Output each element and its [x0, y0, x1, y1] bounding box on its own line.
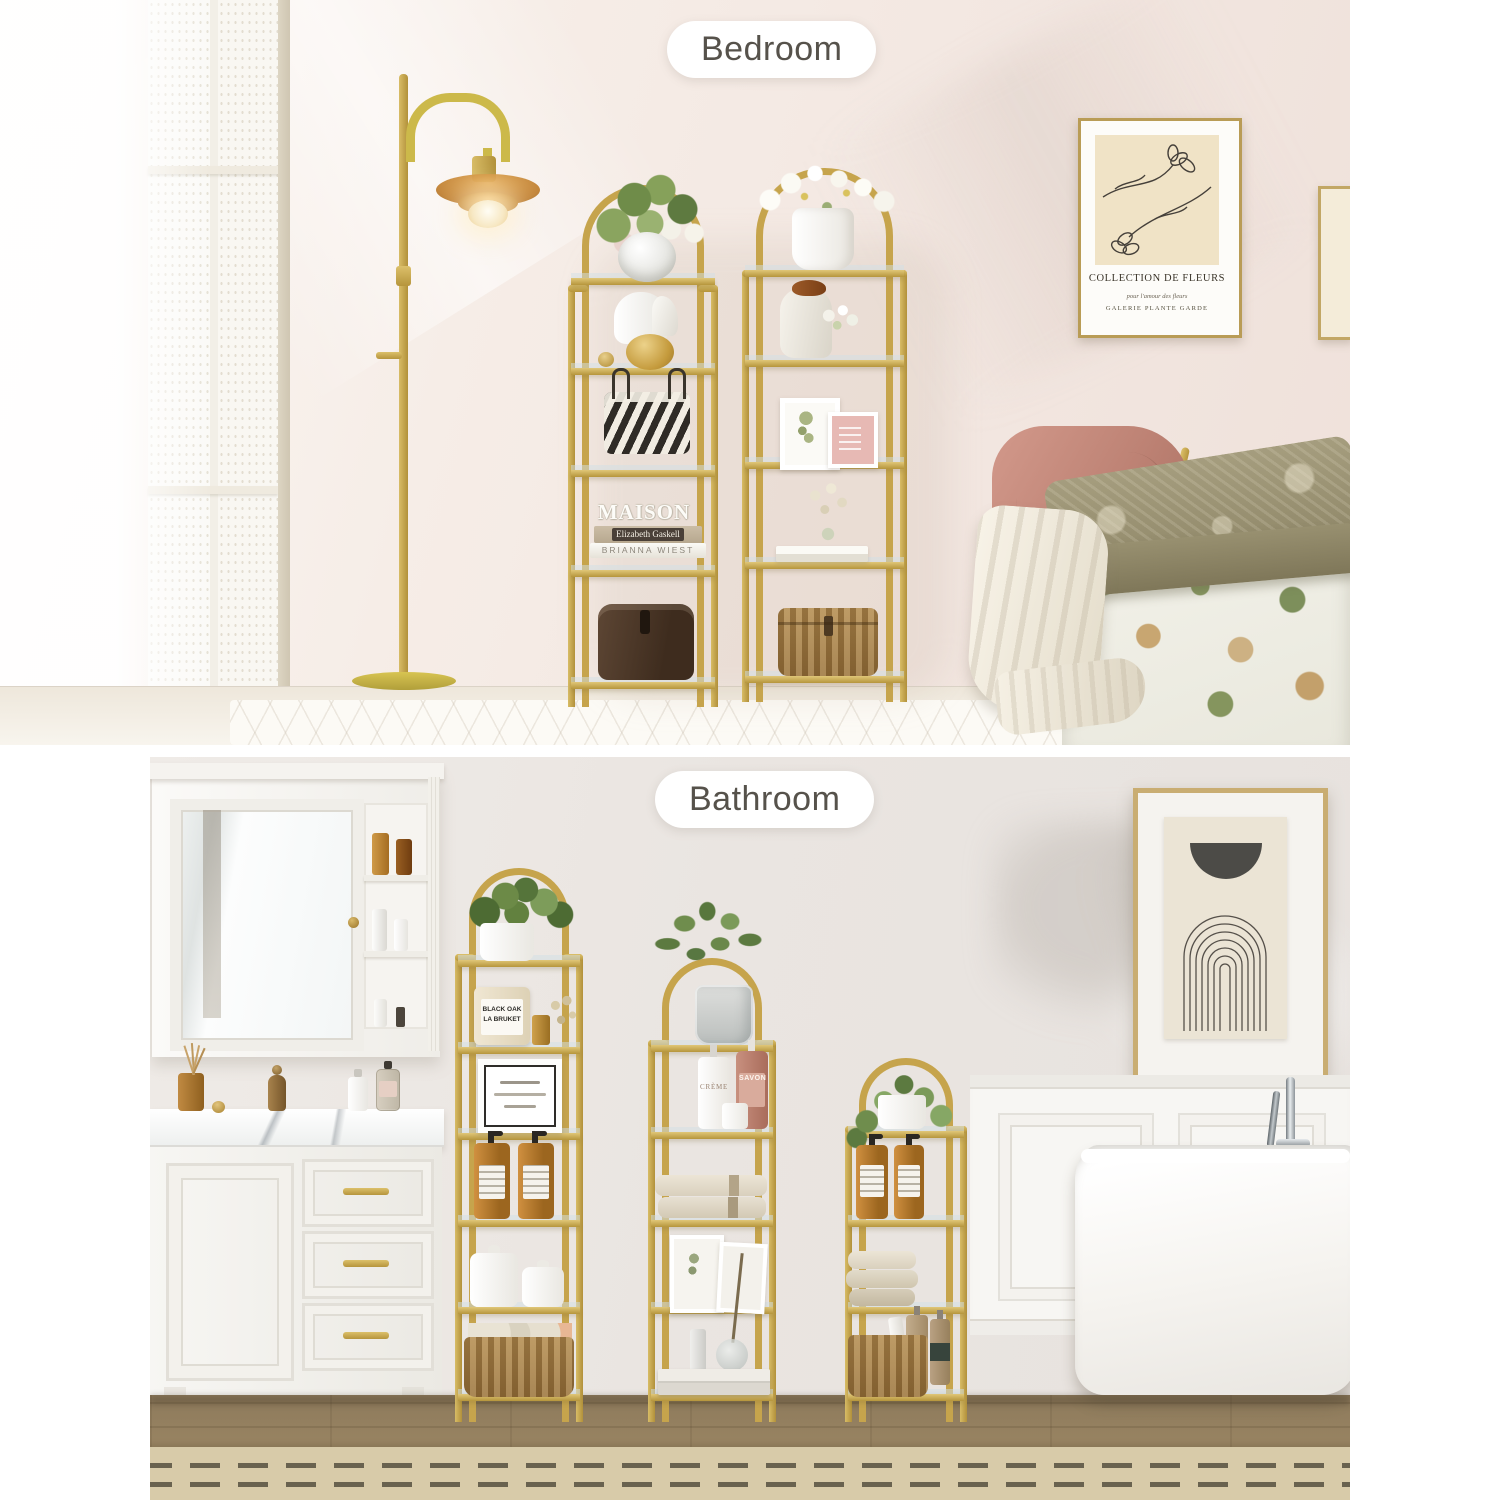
medicine-cabinet	[152, 771, 440, 1057]
tub-rim-highlight	[1081, 1149, 1350, 1163]
bottle-label	[898, 1165, 920, 1197]
book-spine-label: Elizabeth Gaskell	[612, 528, 684, 541]
art-title-text: COLLECTION DE FLEURS	[1089, 273, 1225, 284]
art-paper	[1095, 135, 1219, 265]
shelf-surface	[745, 676, 904, 683]
vanity-drawer	[302, 1303, 434, 1371]
rug-dash-pattern	[150, 1451, 1350, 1500]
art-caption-text: GALERIE PLANTE GARDE	[1106, 305, 1208, 312]
shelf-surface	[571, 470, 715, 477]
glass-vase	[695, 985, 753, 1045]
figurine-bow	[792, 280, 826, 296]
gold-ball-decor	[598, 352, 614, 367]
outer-post-right	[711, 285, 718, 707]
white-planter-pot	[878, 1095, 926, 1129]
figurine-flower-bunch	[812, 298, 868, 342]
savon-label: SAVON	[739, 1073, 765, 1107]
side-shelf-board	[364, 875, 428, 881]
shelf-surface	[458, 1133, 580, 1140]
amber-soap-bottle	[894, 1145, 924, 1219]
cabinet-pilaster	[428, 777, 440, 1051]
mirror-door	[170, 799, 364, 1051]
pump-top	[354, 1069, 362, 1077]
bathtub	[1075, 1145, 1350, 1395]
white-pitcher-vase	[792, 208, 854, 270]
creme-label: CRÈME	[700, 1083, 728, 1091]
mirror-reflection-streak	[203, 810, 221, 1018]
drawer-handle	[343, 1260, 389, 1267]
pump-top	[914, 1306, 920, 1315]
lotion-pump-bottle	[930, 1319, 950, 1385]
clutch-bag	[604, 392, 690, 454]
window-mullion-vertical	[210, 0, 218, 692]
outer-post-right	[900, 270, 907, 702]
chest-clasp	[824, 616, 833, 636]
towel-stack	[846, 1270, 918, 1288]
lotion-label-band	[930, 1343, 950, 1361]
ceramic-canister-tall	[470, 1253, 518, 1307]
bathroom-label-pill: Bathroom	[655, 771, 874, 828]
dried-sprigs	[544, 991, 582, 1039]
print-motif	[686, 1251, 702, 1281]
small-cream-jar	[722, 1103, 748, 1129]
glass-soap-bottle	[376, 1069, 400, 1111]
white-book-stack	[776, 546, 868, 562]
maison-text: MAISON	[598, 500, 690, 524]
bottle-label	[523, 1165, 549, 1199]
outer-post-left	[742, 270, 749, 702]
wicker-basket-short	[848, 1335, 928, 1397]
leather-round-case	[598, 604, 694, 680]
canister-lid-knob	[537, 1260, 549, 1267]
shelf-surface	[458, 1220, 580, 1227]
shelf-surface	[745, 360, 904, 367]
shelf-surface	[458, 1307, 580, 1314]
vanity-counter-marble	[150, 1109, 444, 1147]
vanity-drawer	[302, 1231, 434, 1299]
bedroom-label-text: Bedroom	[701, 30, 842, 68]
case-clasp	[640, 610, 650, 634]
photo-frame-pink	[828, 412, 878, 468]
pump-spout	[869, 1134, 883, 1139]
shelf-surface	[651, 1220, 773, 1227]
bathroom-scene: BLACK OAK LA BRUKET	[150, 757, 1350, 1500]
pump-spout	[532, 1131, 547, 1136]
maison-decor: MAISON	[596, 500, 692, 526]
shelf-surface	[745, 270, 904, 277]
art-nested-arches	[1164, 891, 1287, 1041]
art-subtitle-text: pour l'amour des fleurs	[1127, 293, 1188, 300]
art-caption: GALERIE PLANTE GARDE	[1085, 305, 1229, 312]
white-soap-pump	[348, 1077, 368, 1111]
outer-post-left	[648, 1040, 655, 1422]
floor-lamp-arm	[406, 93, 510, 162]
framed-quote-print	[478, 1059, 562, 1133]
shelf-surface	[651, 1132, 773, 1139]
white-bottle	[394, 919, 408, 951]
shelf-surface	[651, 1394, 773, 1401]
brass-figurine	[268, 1075, 286, 1111]
ceramic-canister-short	[522, 1267, 564, 1307]
floor-lamp-cross-stub	[376, 352, 402, 359]
amber-soap-bottle	[856, 1145, 888, 1219]
wall-art-partial	[1318, 186, 1350, 340]
window-frame-post	[278, 0, 290, 692]
savon-text: SAVON	[739, 1075, 766, 1082]
window-pane-right	[218, 0, 278, 692]
shelf-surface	[848, 1307, 964, 1314]
gold-apple-decor	[626, 334, 674, 370]
floor-lamp-bulb	[468, 200, 508, 228]
amber-pump-bottle	[372, 833, 389, 875]
vanity-body	[150, 1147, 442, 1415]
shelf-surface	[848, 1220, 964, 1227]
cabinet-side-shelves	[364, 803, 428, 1029]
quote-script-line	[494, 1093, 546, 1096]
folded-towel	[655, 1175, 767, 1196]
white-canister	[372, 909, 387, 951]
chest-lid-line	[778, 622, 878, 625]
towel-stripe	[729, 1175, 739, 1196]
pump-top	[937, 1310, 943, 1319]
reed-diffuser	[178, 1073, 204, 1111]
frame-botanical-motif	[797, 411, 815, 447]
pump-spout	[906, 1134, 920, 1139]
vanity-drawer	[302, 1159, 434, 1227]
product-photo-canvas: MAISON Elizabeth Gaskell BRIANNA WIEST	[0, 0, 1500, 1500]
shelf-surface	[571, 682, 715, 689]
vanity-door-panel	[166, 1163, 294, 1381]
crystal-sphere-vase	[618, 232, 676, 282]
cabinet-knob	[348, 917, 359, 928]
bottle-label	[479, 1165, 505, 1199]
amber-soap-bottle	[474, 1143, 510, 1219]
pump-white	[748, 1040, 755, 1051]
shelf-surface	[458, 1047, 580, 1054]
gold-ball-counter	[212, 1101, 225, 1113]
art-subtitle: pour l'amour des fleurs	[1085, 293, 1229, 300]
creme-text: CRÈME	[700, 1083, 728, 1091]
quote-script-line	[500, 1081, 540, 1084]
pump-top	[384, 1061, 392, 1069]
flower-line-art	[1095, 135, 1219, 265]
bottle-label-pink	[379, 1081, 397, 1097]
side-shelf-board	[364, 951, 428, 957]
towel-stack	[848, 1251, 916, 1269]
bathroom-rug	[150, 1447, 1350, 1500]
white-cylinder-pot	[480, 923, 534, 961]
towel-stripe	[728, 1197, 738, 1218]
shelf-surface	[745, 562, 904, 569]
art-semicircle	[1190, 843, 1262, 879]
left-light-wash	[0, 0, 210, 745]
amber-soap-bottle	[518, 1143, 554, 1219]
book-elizabeth-gaskell: Elizabeth Gaskell	[594, 526, 702, 543]
book-brianna-wiest: BRIANNA WIEST	[590, 543, 706, 558]
bedroom-label-pill: Bedroom	[667, 21, 876, 78]
candle-label: BLACK OAK LA BRUKET	[481, 999, 523, 1035]
candle-line1: BLACK OAK	[481, 1006, 523, 1013]
wicker-chest	[778, 608, 878, 676]
shelf-surface	[458, 960, 580, 967]
wicker-storage-basket	[464, 1337, 574, 1397]
dried-sprig-bunch	[796, 478, 860, 548]
shelf-surface	[571, 570, 715, 577]
towel-stack	[849, 1289, 915, 1306]
pump-white	[710, 1045, 717, 1057]
brass-figurine-head	[272, 1065, 282, 1075]
outer-post-left	[455, 954, 462, 1422]
floor-lamp-joint	[396, 266, 411, 286]
amber-pump-bottle	[396, 839, 412, 875]
bag-strap	[612, 368, 630, 399]
outer-post-right	[769, 1040, 776, 1422]
wall-art-fleurs: COLLECTION DE FLEURS pour l'amour des fl…	[1078, 118, 1242, 338]
stacked-books	[658, 1369, 770, 1395]
glass-disc-vase	[716, 1339, 748, 1371]
dropper-bottle	[396, 1007, 405, 1027]
spine1-text: Elizabeth Gaskell	[616, 529, 680, 539]
cabinet-crown-molding	[150, 763, 444, 779]
drawer-handle	[343, 1332, 389, 1339]
bottle-label	[860, 1165, 884, 1197]
floor-lamp-pole	[399, 74, 408, 680]
outer-post-right	[960, 1126, 967, 1422]
drawer-handle	[343, 1188, 389, 1195]
candle-jar: BLACK OAK LA BRUKET	[474, 987, 530, 1045]
art-paper-cream	[1164, 817, 1287, 1039]
bathroom-label-text: Bathroom	[689, 780, 840, 818]
pump-spout	[488, 1131, 503, 1136]
spine2-text: BRIANNA WIEST	[602, 545, 695, 555]
olive-branches	[642, 897, 784, 999]
quote-script-line	[504, 1105, 536, 1108]
wall-art-arches	[1133, 788, 1328, 1081]
small-white-bottle	[374, 999, 387, 1027]
outer-post-left	[568, 285, 575, 707]
candle-line2: LA BRUKET	[481, 1016, 523, 1023]
folded-towel	[658, 1197, 766, 1218]
canister-lid-knob	[488, 1245, 500, 1253]
art-title: COLLECTION DE FLEURS	[1085, 273, 1229, 284]
bag-strap	[668, 368, 686, 399]
pink-art-lines	[839, 424, 861, 450]
perfume-bottle	[690, 1329, 706, 1371]
bedroom-scene: MAISON Elizabeth Gaskell BRIANNA WIEST	[0, 0, 1350, 745]
floor-lamp-base	[352, 672, 456, 690]
